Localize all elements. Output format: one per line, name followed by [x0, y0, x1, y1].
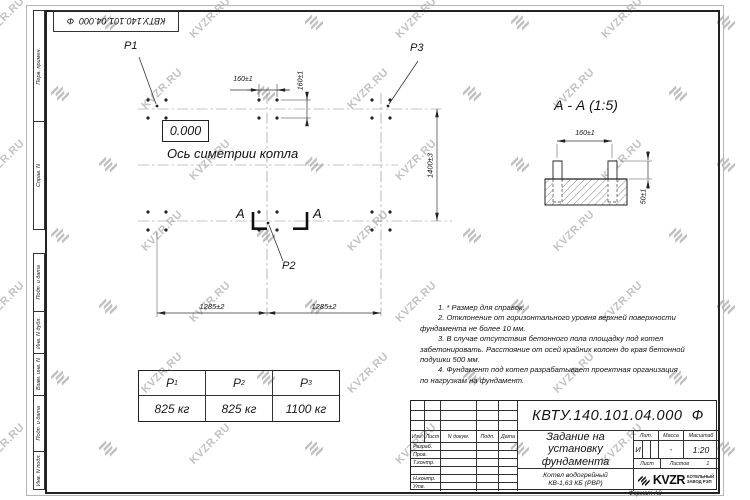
note-line: 3. В случае отсутствия бетонного пола пл…	[420, 334, 720, 344]
tb-mass-value: -	[659, 441, 684, 459]
load-table-header-row: Р1 Р2 Р3	[139, 371, 339, 396]
dim-1285-left: 1285±2	[187, 302, 237, 311]
top-doc-number: КВТУ.140.101.04.000 Ф	[67, 16, 165, 26]
kvzr-logo-icon	[638, 474, 651, 487]
note-line: по нагрузкам на фундамент.	[420, 376, 720, 386]
tb-row-label: Н.контр.	[411, 475, 441, 483]
notes-block: 1. * Размер для справок. 2. Отклонение о…	[420, 303, 720, 386]
tb-row-label: Т.контр.	[411, 459, 441, 467]
tb-product: Котел водогрейный КВ-1,63 КБ (РВР)	[518, 469, 634, 491]
axis-of-symmetry-label: Ось симетрии котла	[167, 146, 298, 161]
tb-sheets-cell: Листов1	[661, 459, 718, 469]
note-line: забетонировать. Расстояние от осей крайн…	[420, 345, 720, 355]
sidebar-label: Инв. N подл.	[36, 454, 42, 486]
sidebar-cell: Подп. и дата	[34, 396, 44, 452]
load-table-value: 825 кг	[139, 396, 206, 421]
tb-row-label: Разраб.	[411, 443, 441, 451]
dim-1285-right: 1285±2	[299, 302, 349, 311]
tb-col-header: Подп.	[477, 431, 499, 443]
load-label-p3: Р3	[410, 42, 423, 54]
elevation-value: 0.000	[170, 124, 201, 138]
load-label-p2: Р2	[282, 260, 295, 272]
load-table-header: Р1	[139, 371, 206, 395]
dim-160-horizontal: 160±1	[221, 76, 265, 83]
sidebar-cell: Перв. примен.	[34, 11, 44, 122]
tb-scale-header: Масштаб	[684, 431, 718, 441]
section-dim-50: 50±1	[641, 182, 648, 212]
section-view-title: А - А (1:5)	[536, 97, 636, 113]
note-line: 4. Фундамент под котел разрабатывает про…	[420, 365, 720, 375]
load-table-header: Р2	[206, 371, 273, 395]
note-line: 1. * Размер для справок.	[420, 303, 720, 313]
elevation-mark: 0.000	[162, 120, 209, 142]
tb-row-label: Утв.	[411, 483, 441, 491]
load-table: Р1 Р2 Р3 825 кг 825 кг 1100 кг	[138, 370, 340, 422]
dim-160-vertical: 160±1	[298, 65, 305, 97]
section-letter-right: А	[313, 206, 322, 221]
note-line: 2. Отклонение от горизонтального уровня …	[420, 313, 720, 323]
tb-logo-cell: KVZR КОТЕЛЬНЫЙЗАВОД РЭП	[634, 469, 718, 491]
sidebar-label: Инв. N дубл.	[36, 317, 42, 349]
tb-row-label: Пров.	[411, 451, 441, 459]
section-dim-160: 160±1	[560, 130, 610, 137]
tb-lit-value: И	[634, 441, 643, 459]
tb-mass-header: Масса	[659, 431, 684, 441]
tb-sheet-cell: Лист	[634, 459, 661, 469]
tb-row-label	[411, 467, 441, 475]
load-table-value: 825 кг	[206, 396, 273, 421]
dim-1400: 1400±3	[426, 144, 435, 188]
tb-scale-value: 1:20	[684, 441, 718, 459]
tb-doc-number: КВТУ.140.101.04.000 Ф	[518, 401, 718, 431]
sidebar-label: Перв. примен.	[36, 48, 42, 85]
kvzr-logo-text: KVZR	[653, 473, 685, 487]
sidebar-label: Подп. и дата	[36, 406, 42, 440]
sidebar-cell: Инв. N подл.	[34, 452, 44, 489]
kvzr-logo-subtext: КОТЕЛЬНЫЙЗАВОД РЭП	[687, 475, 714, 484]
title-block: Изм. Лист N докум. Подп. Дата Разраб. Пр…	[410, 400, 717, 490]
sidebar-label: Подп. и дата	[36, 265, 42, 299]
tb-title: Задание на установку фундамента	[518, 431, 634, 469]
note-line: фундамента не более 10 мм.	[420, 324, 720, 334]
load-table-header: Р3	[273, 371, 339, 395]
load-label-p1: Р1	[124, 40, 137, 52]
tb-col-header: Дата	[499, 431, 518, 443]
note-line: подушки 500 мм.	[420, 355, 720, 365]
tb-col-header: Изм.	[411, 431, 425, 443]
sidebar-label: Справ. N	[36, 164, 42, 187]
tb-col-header: Лист	[425, 431, 441, 443]
sidebar-cell: Инв. N дубл.	[34, 312, 44, 354]
drawing-sheet: KVZR.RU KVZR.RU KVZR.RU KVZR.RU KVZR.RU …	[0, 0, 750, 500]
top-doc-number-stamp: КВТУ.140.101.04.000 Ф	[53, 10, 179, 32]
load-table-value-row: 825 кг 825 кг 1100 кг	[139, 396, 339, 421]
sidebar-cell: Подп. и дата	[34, 254, 44, 312]
sidebar-cell: Взам. инв. N	[34, 354, 44, 396]
sidebar-cell: Справ. N	[34, 122, 44, 230]
format-label: Формат А3	[585, 491, 705, 497]
tb-lit-header: Лит.	[634, 431, 659, 441]
tb-col-header: N докум.	[441, 431, 477, 443]
section-letter-left: А	[236, 206, 245, 221]
load-table-value: 1100 кг	[273, 396, 339, 421]
sidebar-bottom-strip: Подп. и дата Инв. N дубл. Взам. инв. N П…	[33, 253, 45, 490]
sidebar-label: Взам. инв. N	[36, 358, 42, 390]
sidebar-top-strip: Перв. примен. Справ. N	[33, 10, 45, 230]
